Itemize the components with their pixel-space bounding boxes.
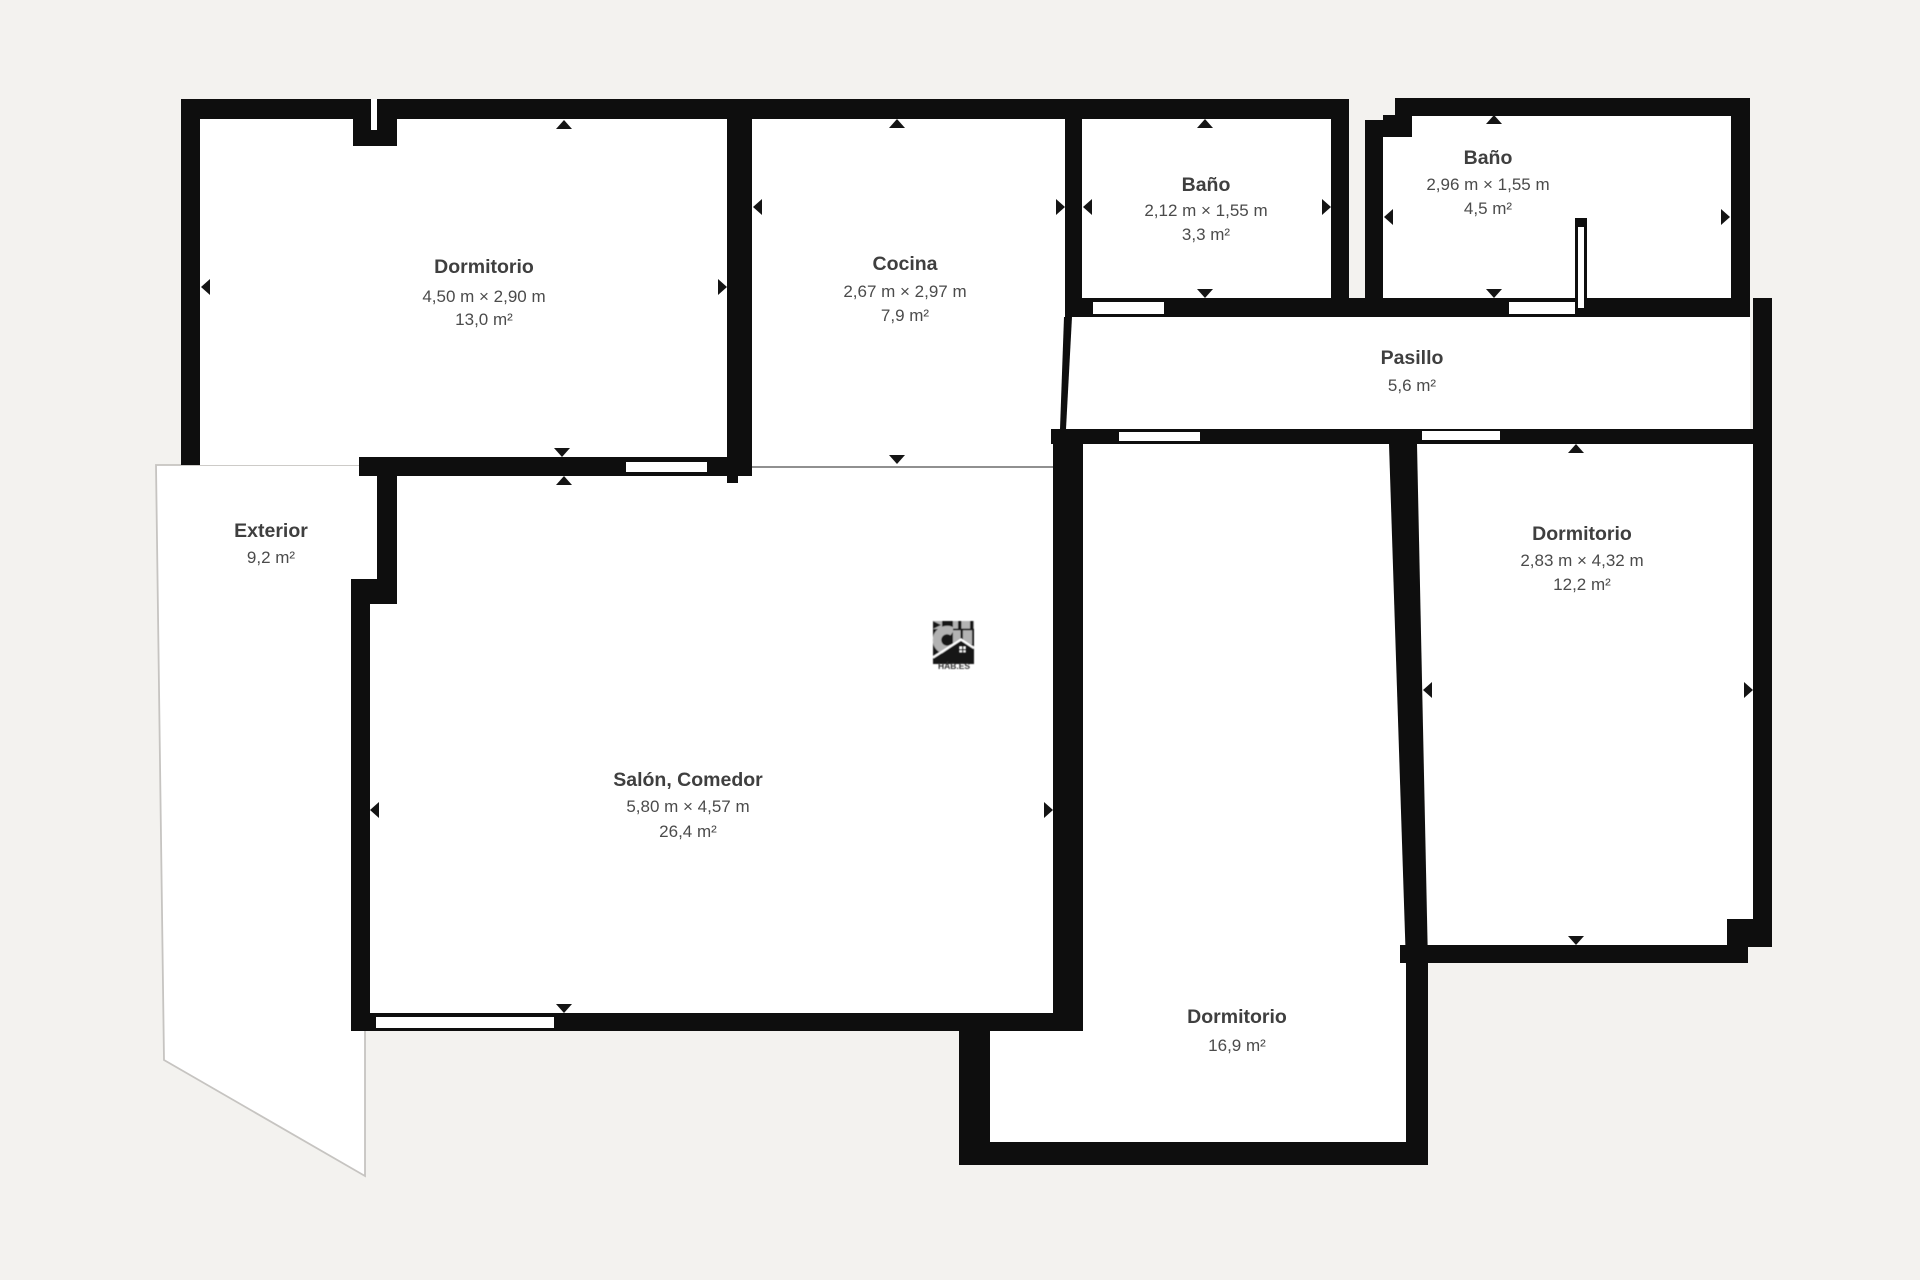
svg-text:Pasillo: Pasillo <box>1381 347 1444 369</box>
svg-text:Dormitorio: Dormitorio <box>434 256 534 278</box>
svg-text:2,67 m × 2,97 m: 2,67 m × 2,97 m <box>843 282 966 301</box>
svg-text:4,50 m × 2,90 m: 4,50 m × 2,90 m <box>422 287 545 306</box>
svg-text:7,9 m²: 7,9 m² <box>881 306 930 325</box>
svg-text:Exterior: Exterior <box>234 520 308 542</box>
svg-text:26,4 m²: 26,4 m² <box>659 822 717 841</box>
svg-text:16,9 m²: 16,9 m² <box>1208 1036 1266 1055</box>
svg-text:Dormitorio: Dormitorio <box>1187 1006 1287 1028</box>
svg-text:2,83 m × 4,32 m: 2,83 m × 4,32 m <box>1520 551 1643 570</box>
svg-text:Dormitorio: Dormitorio <box>1532 523 1632 545</box>
svg-text:9,2 m²: 9,2 m² <box>247 548 296 567</box>
svg-text:13,0 m²: 13,0 m² <box>455 310 513 329</box>
svg-text:3,3 m²: 3,3 m² <box>1182 225 1231 244</box>
svg-text:Cocina: Cocina <box>872 253 937 275</box>
svg-text:2,96 m × 1,55 m: 2,96 m × 1,55 m <box>1426 175 1549 194</box>
svg-text:12,2 m²: 12,2 m² <box>1553 575 1611 594</box>
svg-text:5,80 m × 4,57 m: 5,80 m × 4,57 m <box>626 797 749 816</box>
svg-text:Baño: Baño <box>1464 147 1513 169</box>
svg-text:Baño: Baño <box>1182 174 1231 196</box>
svg-text:2,12 m × 1,55 m: 2,12 m × 1,55 m <box>1144 201 1267 220</box>
svg-text:4,5 m²: 4,5 m² <box>1464 199 1513 218</box>
svg-text:HÁB.ES: HÁB.ES <box>938 661 970 671</box>
svg-text:Salón, Comedor: Salón, Comedor <box>613 769 763 791</box>
svg-text:5,6 m²: 5,6 m² <box>1388 376 1437 395</box>
